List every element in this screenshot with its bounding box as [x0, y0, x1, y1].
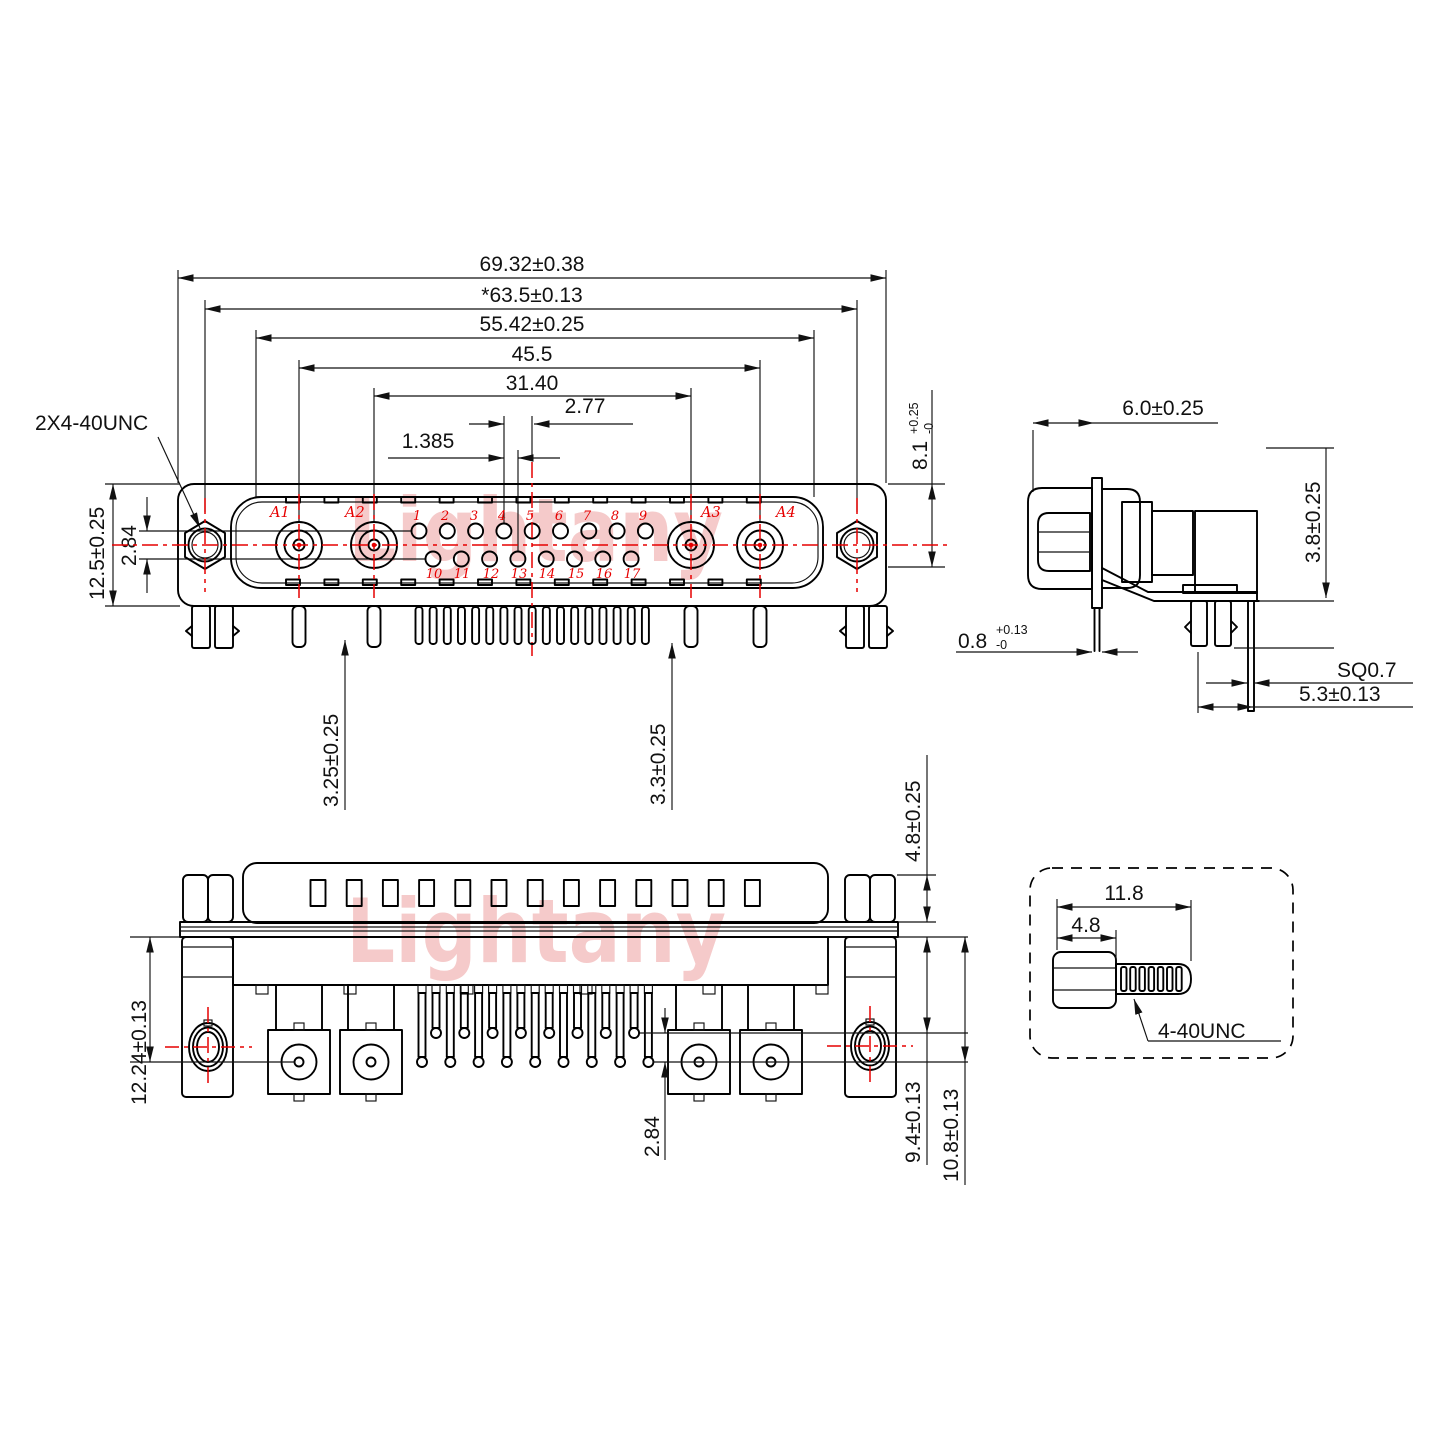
pin-number-3: 3	[470, 509, 478, 524]
dim-tail-left: 3.25±0.25	[320, 714, 343, 807]
pin-number-13: 13	[511, 567, 528, 582]
pin-number-7: 7	[583, 509, 592, 524]
dim-row-offset: 1.385	[402, 430, 455, 453]
dim-total-length: 11.8	[1104, 882, 1143, 905]
dim-shell-height: 4.8±0.25	[902, 780, 925, 862]
dim-head-length: 4.8	[1071, 914, 1100, 937]
jackscrew-thread-label: 2X4-40UNC	[35, 412, 148, 435]
dim-upper-height: 8.1	[909, 441, 932, 470]
side-view: 6.0±0.25 0.8 +0.13 -0 3.8±0.25	[956, 397, 1413, 713]
pin-number-5: 5	[526, 509, 534, 524]
pin-number-1: 1	[413, 509, 421, 524]
screw-thread-label: 4-40UNC	[1158, 1020, 1246, 1043]
dim-row2-height: 10.8±0.13	[940, 1089, 963, 1182]
dim-upper-tol-minus: -0	[922, 423, 936, 434]
dim-flange-thickness: 0.8	[958, 630, 987, 653]
dim-tail-right: 3.3±0.25	[647, 723, 670, 805]
dim-row1-height: 9.4±0.13	[902, 1081, 925, 1163]
contact-label-a4: A4	[774, 505, 796, 521]
contact-label-a1: A1	[268, 505, 290, 521]
pin-number-15: 15	[568, 567, 585, 582]
dim-pin-span: 5.3±0.13	[1299, 683, 1381, 706]
pin-number-2: 2	[440, 509, 449, 524]
pin-number-4: 4	[497, 509, 506, 524]
dim-depth: 6.0±0.25	[1122, 397, 1204, 420]
dim-mount-span: *63.5±0.13	[481, 284, 582, 307]
dim-overall-width: 69.32±0.38	[480, 253, 585, 276]
dim-a1-a4-span: 45.5	[512, 343, 553, 366]
pin-number-10: 10	[426, 567, 443, 582]
pin-number-14: 14	[539, 567, 556, 582]
dim-row-spacing-bottom: 2.84	[641, 1116, 664, 1157]
dim-body-height: 12.5±0.25	[86, 507, 109, 600]
pin-number-12: 12	[483, 567, 500, 582]
dim-pin-square: SQ0.7	[1337, 659, 1397, 682]
contact-label-a3: A3	[699, 505, 721, 521]
contact-label-a2: A2	[343, 505, 365, 521]
dim-flange-tol-minus: -0	[996, 638, 1007, 652]
dim-a2-a3-span: 31.40	[506, 372, 559, 395]
screw-detail: 11.8 4.8 4-40UNC	[1030, 868, 1293, 1058]
jackscrew-boardlock-right	[840, 606, 893, 648]
pin-number-16: 16	[596, 567, 613, 582]
pin-number-17: 17	[624, 567, 641, 582]
dim-upper-tol-plus: +0.25	[907, 402, 921, 434]
pin-number-9: 9	[639, 509, 647, 524]
dim-overall-height: 12.24±0.13	[128, 1000, 151, 1105]
dim-pin-pitch: 2.77	[565, 395, 606, 418]
drawing-canvas: Lightany Lightany 69.32±0.38 *63.5±0.13 …	[0, 0, 1440, 1440]
pin-number-11: 11	[454, 567, 471, 582]
dim-standoff: 3.8±0.25	[1302, 481, 1325, 563]
pin-number-8: 8	[611, 509, 619, 524]
pin-number-6: 6	[555, 509, 563, 524]
dim-flange-tol-plus: +0.13	[996, 623, 1028, 637]
jackscrew-boardlock-left	[186, 606, 239, 648]
dim-insert-width: 55.42±0.25	[480, 313, 585, 336]
side-boardlock	[1185, 601, 1237, 646]
